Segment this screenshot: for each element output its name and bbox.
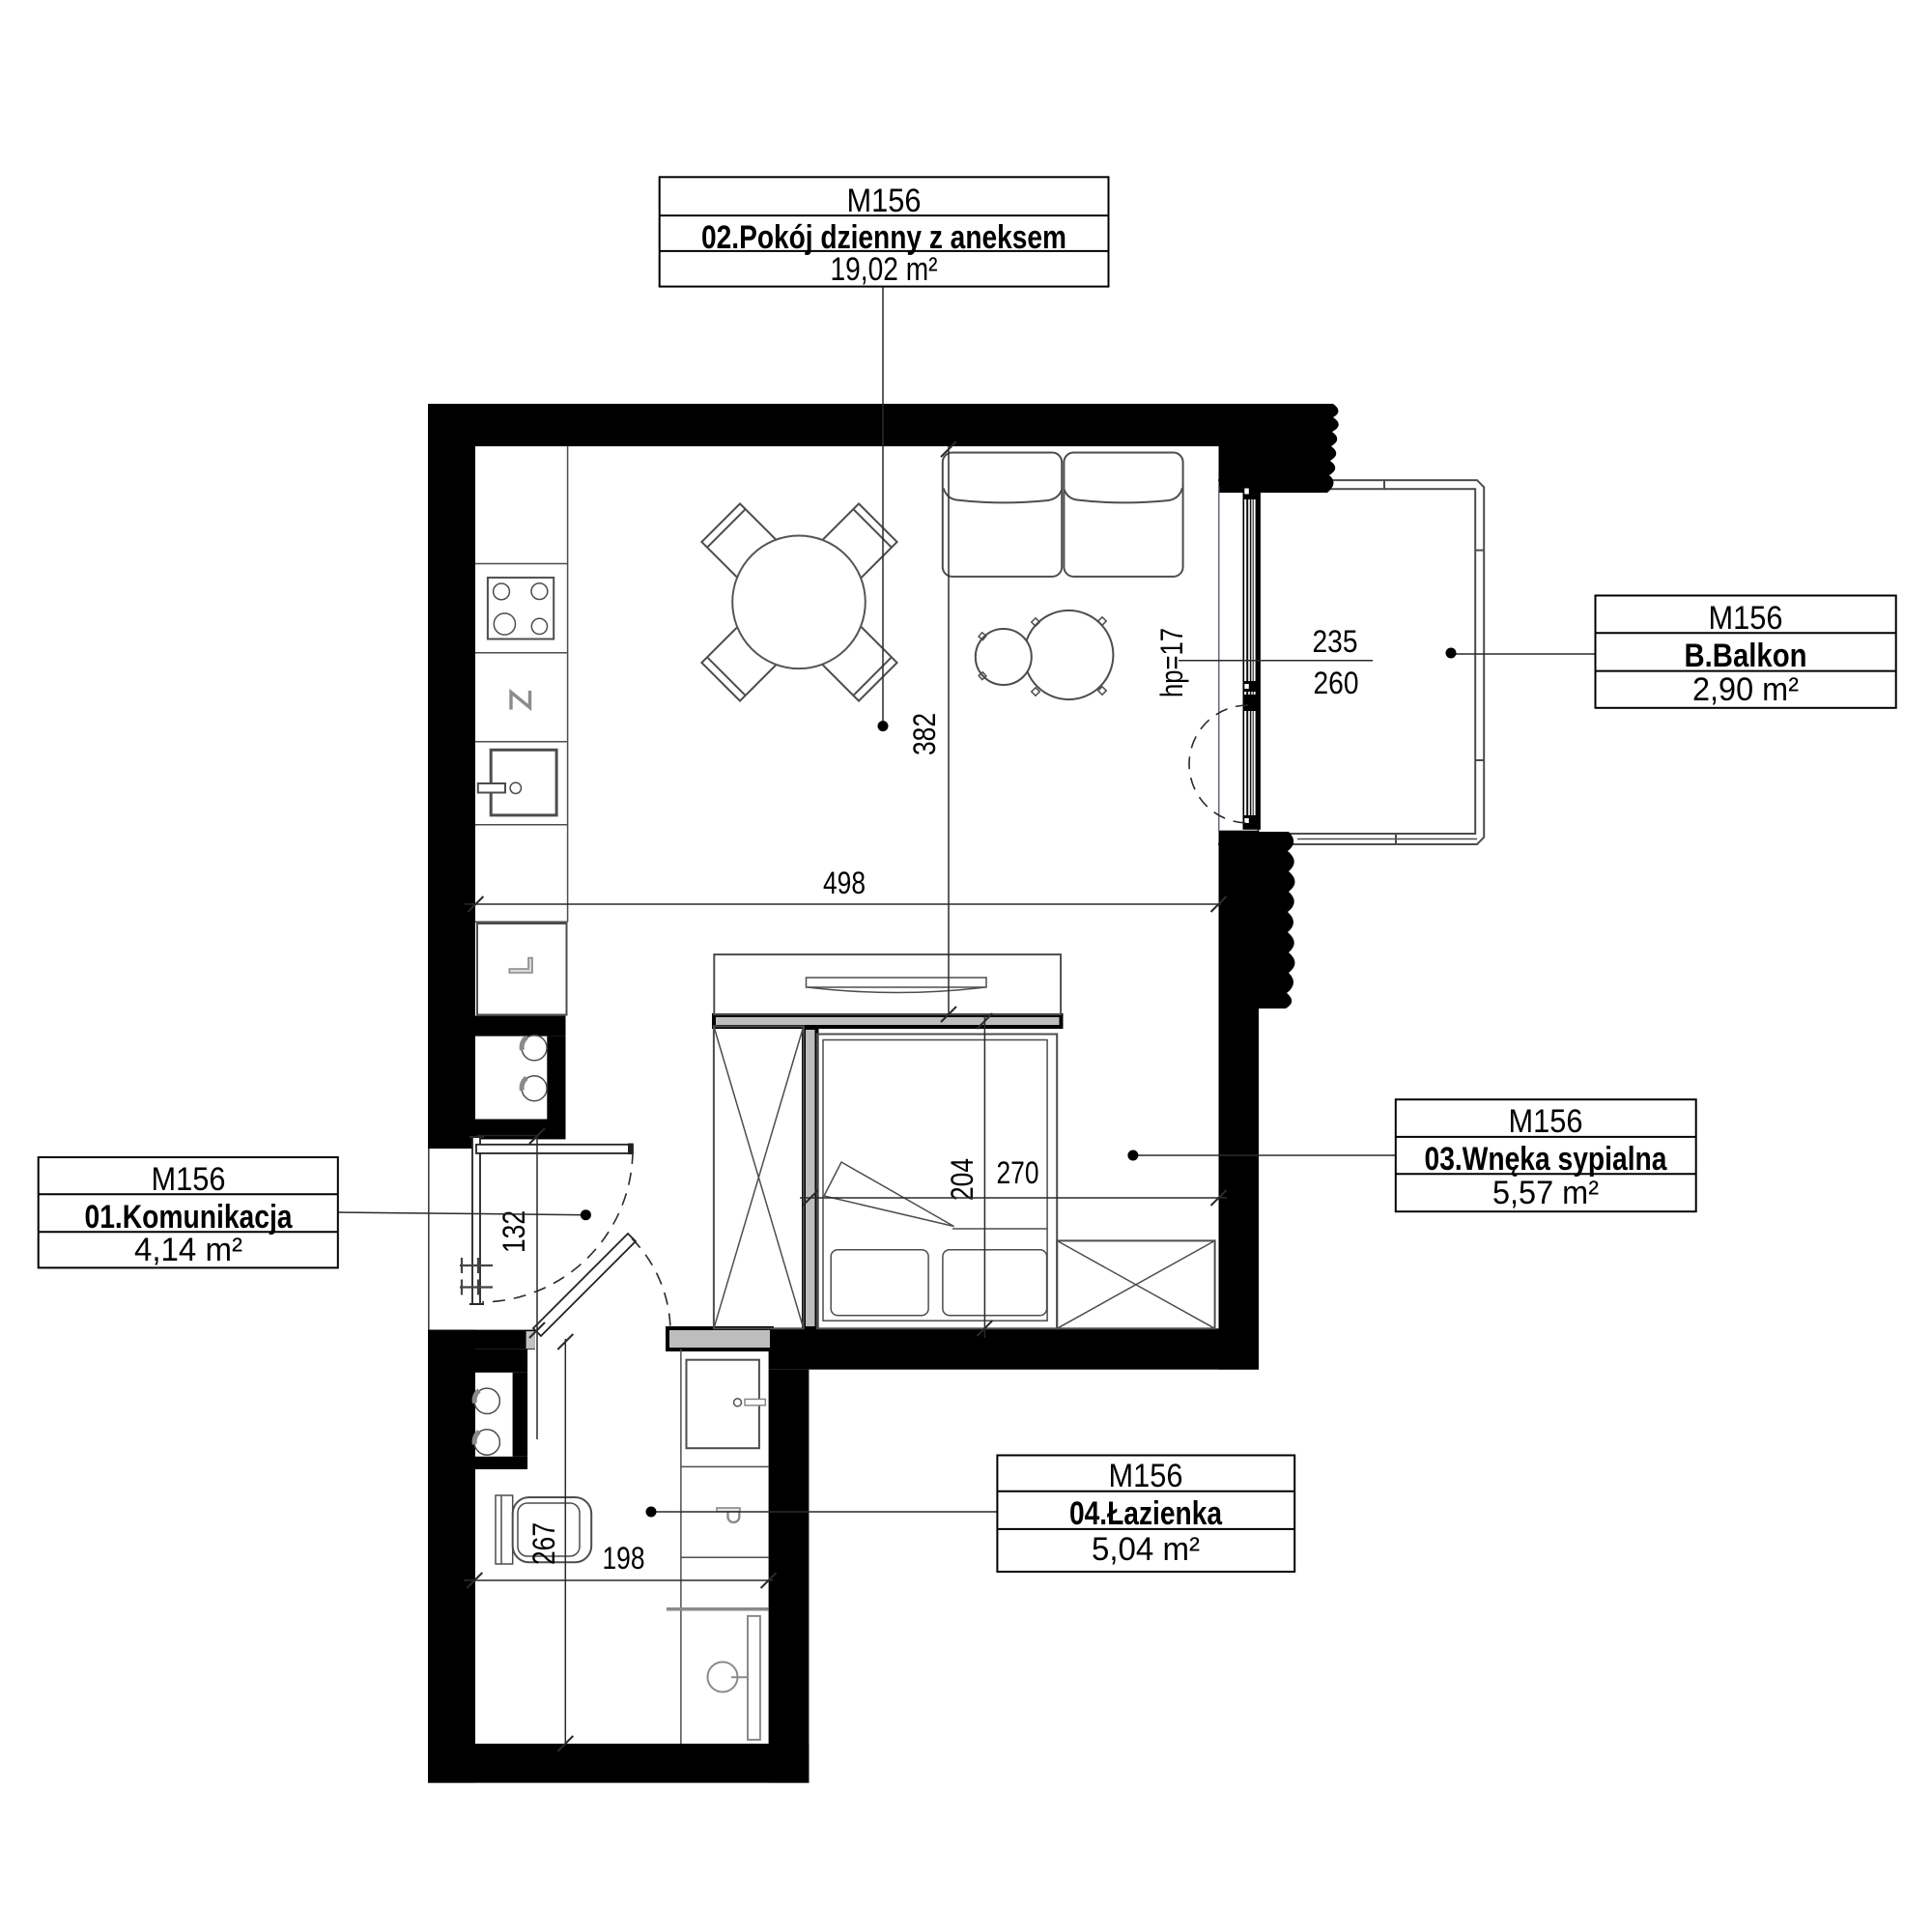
svg-text:498: 498 [823,866,866,900]
svg-text:235: 235 [1313,624,1358,659]
svg-text:198: 198 [603,1541,645,1576]
svg-text:M156: M156 [1709,600,1783,637]
svg-text:204: 204 [945,1158,980,1201]
svg-text:B.Balkon: B.Balkon [1685,638,1807,674]
svg-text:M156: M156 [1109,1458,1183,1494]
svg-text:2,90 m²: 2,90 m² [1692,671,1799,708]
svg-text:382: 382 [907,713,942,755]
svg-text:270: 270 [997,1155,1039,1190]
svg-text:260: 260 [1314,666,1359,700]
svg-text:01.Komunikacja: 01.Komunikacja [85,1199,294,1236]
svg-text:132: 132 [497,1210,531,1253]
svg-text:04.Łazienka: 04.Łazienka [1069,1495,1223,1532]
svg-text:19,02 m²: 19,02 m² [831,251,938,288]
svg-text:M156: M156 [152,1161,226,1198]
svg-text:hp=17: hp=17 [1154,628,1189,697]
svg-text:5,57 m²: 5,57 m² [1492,1175,1599,1211]
svg-text:4,14 m²: 4,14 m² [134,1232,242,1268]
svg-text:03.Wnęka sypialna: 03.Wnęka sypialna [1425,1141,1668,1178]
svg-text:5,04 m²: 5,04 m² [1092,1531,1200,1568]
svg-text:267: 267 [526,1522,561,1565]
svg-text:M156: M156 [847,183,922,219]
svg-text:M156: M156 [1509,1103,1583,1140]
